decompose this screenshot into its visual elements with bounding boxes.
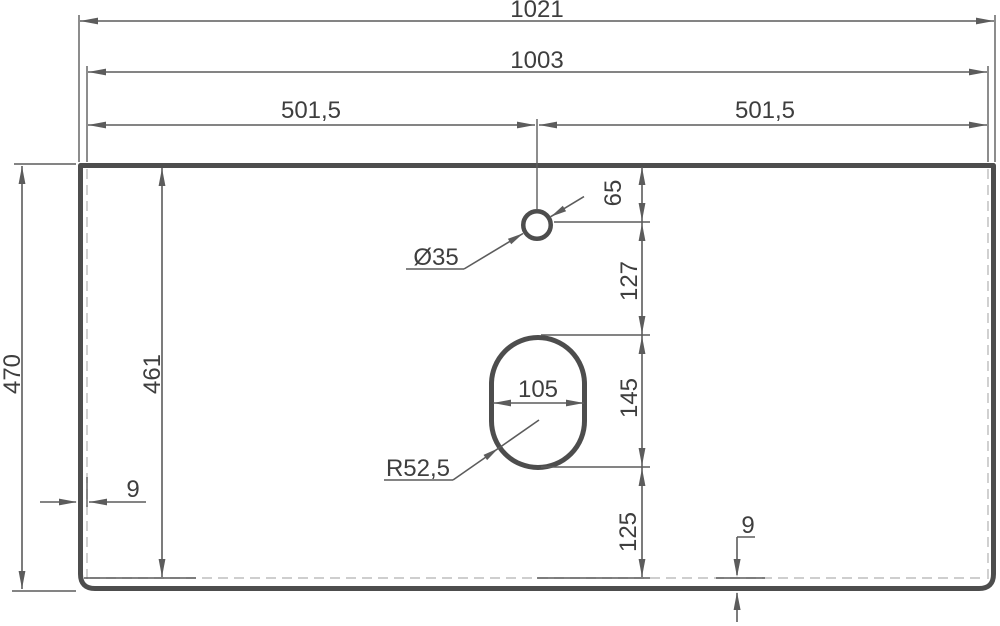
technical-drawing-canvas: 1021 1003 501,5 501,5 470 461: [0, 0, 1000, 626]
arrowhead: [639, 559, 646, 577]
arrowhead: [639, 223, 646, 241]
arrowhead: [19, 571, 26, 589]
dim-label-left-edge: 9: [126, 476, 139, 503]
arrowhead: [493, 400, 511, 407]
dim-cutout-radius: R52,5: [384, 420, 539, 482]
arrowhead: [969, 69, 987, 76]
dim-label-bottom-edge: 9: [741, 512, 754, 539]
dim-hole-diameter: Ø35: [406, 197, 584, 271]
dim-chain-vertical: 65 127 145 125: [541, 167, 650, 577]
arrowhead: [89, 499, 107, 506]
arrowhead: [734, 559, 741, 577]
arrowhead: [566, 400, 584, 407]
dim-inner-depth: 461: [139, 168, 166, 577]
dimension-drawing: 1021 1003 501,5 501,5 470 461: [0, 0, 1000, 626]
dim-label-cutout-length: 145: [616, 378, 643, 418]
dim-label-hole-to-cutout: 127: [616, 261, 643, 301]
arrowhead: [969, 122, 987, 129]
arrowhead: [159, 168, 166, 186]
dim-overall-depth: 470: [0, 164, 76, 591]
dim-label-overall-depth: 470: [0, 354, 26, 394]
dim-label-right-half: 501,5: [735, 97, 795, 124]
arrowhead: [551, 206, 566, 217]
dim-bottom-edge-thickness: 9: [734, 512, 755, 622]
arrowhead: [976, 18, 994, 25]
dim-label-overall-width: 1021: [510, 0, 563, 23]
dim-left-edge-thickness: 9: [40, 476, 146, 507]
arrowhead: [59, 499, 77, 506]
dim-label-cutout-bottom-offset: 125: [615, 512, 642, 552]
arrowhead: [517, 122, 535, 129]
dim-cutout-width: 105: [493, 376, 584, 406]
arrowhead: [639, 316, 646, 334]
arrowhead: [88, 69, 106, 76]
arrowhead: [639, 336, 646, 354]
arrowhead: [484, 448, 499, 460]
faucet-hole: [523, 211, 551, 239]
arrowhead: [88, 122, 106, 129]
arrowhead: [508, 233, 523, 244]
arrowhead: [539, 122, 557, 129]
arrowhead: [734, 592, 741, 610]
dim-half-widths: 501,5 501,5: [88, 97, 987, 210]
dim-label-cutout-width: 105: [518, 376, 558, 403]
dim-label-hole-diameter: Ø35: [413, 244, 458, 271]
arrowhead: [159, 559, 166, 577]
arrowhead: [639, 203, 646, 221]
dim-label-hole-top-offset: 65: [600, 180, 627, 207]
dim-label-cutout-radius: R52,5: [386, 455, 450, 482]
arrowhead: [80, 18, 98, 25]
dim-label-inner-depth: 461: [139, 354, 166, 394]
arrowhead: [639, 468, 646, 486]
arrowhead: [639, 167, 646, 185]
dim-label-left-half: 501,5: [281, 97, 341, 124]
dim-label-inner-width: 1003: [510, 47, 563, 74]
arrowhead: [639, 448, 646, 466]
arrowhead: [19, 166, 26, 184]
